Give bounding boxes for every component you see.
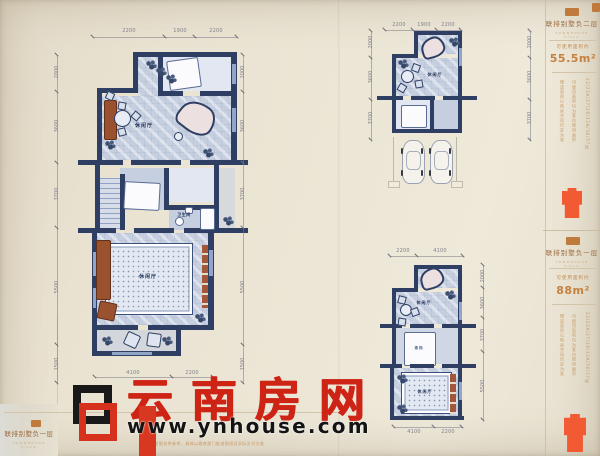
room-label: 休闲厅: [132, 274, 164, 280]
dim-tick: [90, 34, 94, 38]
plant: [101, 336, 113, 346]
ottoman: [146, 332, 162, 348]
wall: [133, 52, 138, 92]
dim-line: [394, 427, 463, 428]
dim-label: 4100: [399, 429, 429, 435]
building-icon: [562, 188, 582, 218]
floorplan-upper-right: 休闲厅: [385, 28, 495, 193]
dim-label: 3700: [480, 325, 486, 345]
dim-label: 2200: [388, 248, 418, 254]
divider: [549, 40, 597, 41]
area-label: 可使用面积约: [546, 276, 600, 282]
chair: [117, 101, 126, 110]
plant: [397, 59, 409, 69]
wall: [134, 228, 174, 233]
dim-label: 3700: [240, 184, 246, 204]
window: [112, 352, 152, 355]
dim-label: 4100: [425, 248, 455, 254]
dim-label: 2200: [114, 28, 144, 34]
window: [459, 302, 462, 320]
parking-stub: [388, 181, 400, 188]
plant: [396, 404, 408, 414]
wall: [390, 416, 464, 420]
dim-label: 5500: [480, 376, 486, 396]
corner-badge: [592, 3, 600, 12]
plant: [222, 216, 234, 226]
wall: [200, 91, 237, 96]
floorplan-main: 休闲厅 卫生间 休闲厅: [88, 50, 248, 370]
logo-red-square: [79, 403, 117, 441]
chair: [397, 317, 406, 326]
dim-label: 2200: [433, 429, 463, 435]
wall: [184, 228, 248, 233]
plant: [104, 140, 116, 150]
wall: [377, 96, 403, 100]
wall: [97, 88, 102, 165]
note-text: 赠送面积以购房合同约定为准: [559, 80, 565, 168]
wall: [410, 364, 434, 368]
unit-numbers: 22/23A/27/28/33A/36/37栋: [584, 312, 590, 410]
dim-line: [243, 55, 244, 383]
wall: [95, 165, 100, 230]
car-roof: [434, 151, 449, 170]
room-label: 楼梯: [407, 345, 431, 351]
plant: [444, 290, 456, 300]
dim-tick: [92, 374, 96, 378]
note-text: 可使用面积均为套内使用面积: [571, 314, 577, 408]
dim-label: 2000: [480, 266, 486, 286]
small-room-floor: [169, 168, 214, 202]
bathtub: [200, 208, 215, 230]
wall: [148, 325, 214, 330]
wall: [392, 129, 462, 133]
wall: [78, 228, 116, 233]
dim-label: 2000: [54, 62, 60, 82]
divider: [552, 304, 596, 305]
corridor-floor: [434, 100, 458, 129]
dim-label: 3700: [527, 108, 533, 128]
dim-label: 1900: [165, 28, 195, 34]
bed: [123, 181, 160, 211]
area-value: 88m²: [546, 284, 600, 297]
room-label: 休闲厅: [421, 72, 449, 78]
room-label: 休闲厅: [410, 300, 438, 306]
unit-subtitle: TOWNHOUSE VILLA: [548, 31, 596, 39]
wall: [208, 233, 214, 325]
car: [402, 140, 425, 184]
type-badge: [566, 237, 580, 245]
dim-label: 2000: [527, 32, 533, 52]
dim-label: 5500: [240, 277, 246, 297]
room-label: 休闲厅: [411, 389, 439, 395]
plant: [448, 37, 460, 47]
plant: [202, 148, 214, 158]
chair: [414, 79, 423, 88]
wall: [133, 52, 237, 57]
plan-subtitle: TOWNHOUSE VILLA: [7, 441, 51, 449]
dim-line: [57, 55, 58, 383]
sofa: [96, 240, 111, 300]
car-roof: [406, 151, 421, 170]
dim-label: 1500: [54, 354, 60, 374]
toilet: [175, 217, 184, 226]
disclaimer-text: 户型图仅供参考，具体以政府部门批准图纸及实际交付为准: [150, 441, 350, 446]
parking-stub: [451, 181, 463, 188]
type-badge: [31, 420, 41, 427]
note-text: 可使用面积均为套内使用面积: [571, 80, 577, 168]
wall: [92, 325, 138, 330]
room-label: 休闲厅: [128, 123, 160, 129]
window: [459, 48, 462, 66]
cabinet: [450, 374, 456, 414]
plan-title: 联排别墅负一层: [1, 430, 57, 438]
dim-tick: [387, 253, 391, 257]
armchair: [96, 300, 117, 321]
unit-title: 联排别墅负一层: [544, 249, 600, 257]
dim-label: 3600: [480, 293, 486, 313]
round-table: [401, 70, 414, 83]
wall: [390, 368, 394, 420]
piano-stool: [174, 132, 183, 141]
area-value: 55.5m²: [546, 52, 600, 65]
dim-tick: [391, 424, 395, 428]
dim-label: 2200: [433, 22, 463, 28]
window: [232, 64, 236, 84]
wall: [392, 328, 396, 368]
window: [209, 250, 213, 276]
plant: [396, 374, 408, 384]
wall: [414, 31, 462, 35]
room-label: 卫生间: [170, 212, 198, 218]
parking-line: [393, 137, 394, 184]
brochure-photo: 休闲厅 卫生间 休闲厅 2200 1900 2200 2000 3600 370…: [0, 0, 600, 456]
dim-label: 3600: [54, 116, 60, 136]
wall: [392, 54, 396, 100]
stairs: [100, 178, 120, 230]
window: [232, 108, 236, 132]
stair-well: [401, 105, 427, 128]
dim-label: 3700: [54, 184, 60, 204]
wall: [410, 324, 434, 328]
car-wheels: [429, 148, 431, 154]
wall: [78, 160, 123, 165]
wall: [164, 168, 169, 210]
dim-label: 2000: [368, 32, 374, 52]
parking-line: [456, 137, 457, 184]
cabinet: [202, 245, 208, 308]
floorplan-lower-right: 休闲厅 楼梯 休闲厅: [388, 262, 468, 424]
plant: [161, 336, 173, 346]
wall: [97, 88, 138, 93]
building-icon: [564, 414, 586, 452]
unit-numbers: 22/23A/27/28/33A/36/37栋: [584, 78, 590, 170]
car-wheels: [401, 148, 403, 154]
dim-label: 3600: [368, 67, 374, 87]
dim-label: 3600: [527, 67, 533, 87]
dim-label: 3600: [240, 116, 246, 136]
dim-label: 5500: [54, 277, 60, 297]
note-text: 赠送面积以购房合同约定为准: [559, 314, 565, 408]
unit-subtitle: TOWNHOUSE VILLA: [548, 260, 596, 268]
brand-url: www.ynhouse.com: [127, 414, 367, 438]
wall: [392, 288, 396, 328]
sidebar-vline: [545, 0, 546, 456]
dim-label: 2200: [201, 28, 231, 34]
wall: [158, 91, 183, 96]
dim-label: 3700: [368, 108, 374, 128]
plant: [194, 313, 206, 323]
dim-tick: [54, 52, 58, 56]
plant: [165, 74, 177, 84]
dim-line: [390, 256, 463, 257]
wall: [442, 364, 476, 368]
dim-line: [385, 30, 461, 31]
type-badge: [565, 8, 579, 16]
area-label: 可使用面积约: [546, 45, 600, 51]
wall: [131, 160, 181, 165]
dim-label: 2000: [240, 62, 246, 82]
wall: [442, 324, 476, 328]
unit-title: 联排别墅负二层: [544, 20, 600, 28]
sidebar-separator: [543, 230, 600, 231]
divider: [549, 268, 597, 269]
divider: [552, 72, 596, 73]
window: [459, 382, 462, 400]
car: [430, 140, 453, 184]
